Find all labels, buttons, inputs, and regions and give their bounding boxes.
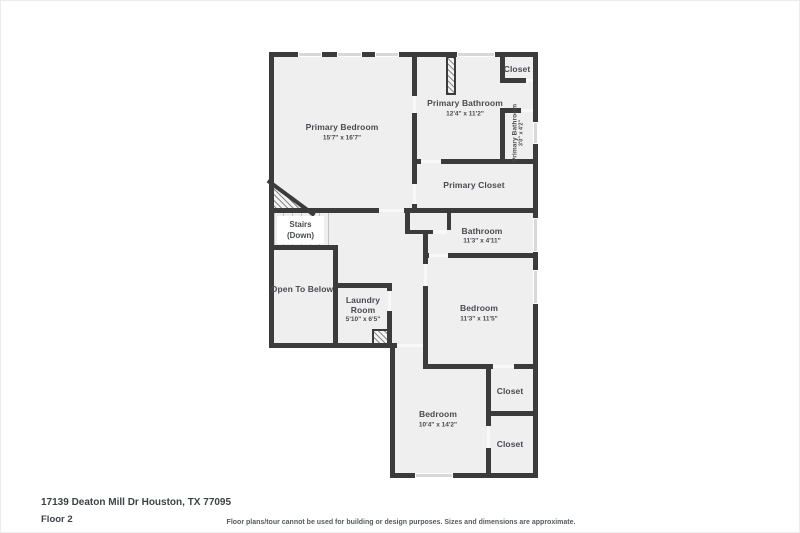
- room-label-closet-middle: Closet: [497, 386, 524, 396]
- wall: [404, 208, 538, 213]
- wall: [412, 113, 417, 184]
- wall: [269, 245, 338, 250]
- room-label-laundry: Laundry Room 5'10" x 6'5": [340, 295, 386, 323]
- room-dims-primary-bathroom: 12'4" x 11'2": [446, 111, 484, 118]
- floor-label: Floor 2: [41, 514, 73, 525]
- door-opening: [388, 291, 391, 311]
- room-label-text: Primary Bathroom: [512, 104, 519, 162]
- room-label-closet-bottom: Closet: [497, 439, 524, 449]
- room-label-bedroom-middle: Bedroom: [460, 303, 498, 313]
- wall: [486, 411, 538, 416]
- wall: [423, 286, 428, 369]
- address-text: 17139 Deaton Mill Dr Houston, TX 77095: [41, 497, 231, 508]
- window: [375, 52, 399, 57]
- window: [533, 122, 538, 144]
- window: [533, 218, 538, 252]
- room-label-primary-closet: Primary Closet: [443, 180, 504, 190]
- wall: [500, 78, 526, 83]
- room-dims-text: 5'10" x 6'5": [340, 316, 386, 323]
- wall: [447, 213, 451, 230]
- wall: [412, 204, 417, 213]
- room-dims-bedroom-bottom: 10'4" x 14'2": [419, 422, 457, 429]
- room-label-open-to-below: Open To Below: [271, 284, 334, 294]
- wall: [269, 343, 397, 348]
- wall: [412, 52, 417, 96]
- wall: [333, 245, 338, 348]
- room-label-primary-bathroom-wc: Primary Bathroom 3'0" x 4'2": [512, 104, 525, 162]
- wall: [486, 448, 491, 478]
- room-label-primary-bathroom: Primary Bathroom: [427, 98, 503, 108]
- door-opening: [424, 264, 427, 286]
- room-label-bathroom: Bathroom: [462, 226, 503, 236]
- door-opening: [379, 209, 404, 212]
- door-opening: [413, 184, 416, 204]
- room-dims-bathroom: 11'3" x 4'11": [463, 238, 500, 245]
- wall: [390, 343, 395, 478]
- wall: [514, 364, 538, 369]
- door-opening: [487, 426, 490, 448]
- wall: [269, 52, 274, 348]
- wall: [405, 230, 433, 234]
- wall: [423, 364, 493, 369]
- wall: [390, 473, 538, 478]
- floorplan-canvas: Primary Bedroom 15'7" x 16'7" Primary Ba…: [0, 0, 800, 533]
- room-dims-bedroom-middle: 11'3" x 11'5": [460, 316, 497, 323]
- door-opening: [421, 160, 441, 163]
- door-opening: [397, 344, 423, 347]
- room-label-closet-top: Closet: [504, 64, 531, 74]
- room-label-text: Laundry Room: [340, 295, 386, 315]
- shower-wall-hatch: [446, 56, 456, 95]
- room-label-primary-bedroom: Primary Bedroom: [306, 122, 379, 132]
- door-opening: [429, 254, 448, 257]
- door-opening: [493, 365, 514, 368]
- wall: [387, 283, 392, 291]
- wall: [338, 283, 392, 288]
- window: [298, 52, 322, 57]
- door-opening: [413, 96, 416, 113]
- window: [415, 473, 453, 478]
- room-dims-primary-bedroom: 15'7" x 16'7": [323, 135, 361, 142]
- stairs-label-text: Stairs: [289, 220, 311, 229]
- wall: [500, 108, 505, 159]
- wall: [486, 369, 491, 411]
- stairs-label: Stairs (Down): [277, 216, 324, 244]
- wall: [269, 208, 379, 213]
- room-label-bedroom-bottom: Bedroom: [419, 409, 457, 419]
- wall: [412, 159, 421, 164]
- disclaimer-text: Floor plans/tour cannot be used for buil…: [227, 519, 576, 526]
- window: [533, 270, 538, 304]
- door-opening: [433, 230, 447, 234]
- window: [457, 52, 495, 57]
- window: [337, 52, 362, 57]
- door-opening: [526, 79, 533, 82]
- stairs-sub-text: (Down): [287, 231, 314, 240]
- wall: [486, 411, 491, 426]
- wall: [448, 253, 538, 258]
- wall: [423, 234, 428, 264]
- room-dims-text: 3'0" x 4'2": [519, 104, 525, 162]
